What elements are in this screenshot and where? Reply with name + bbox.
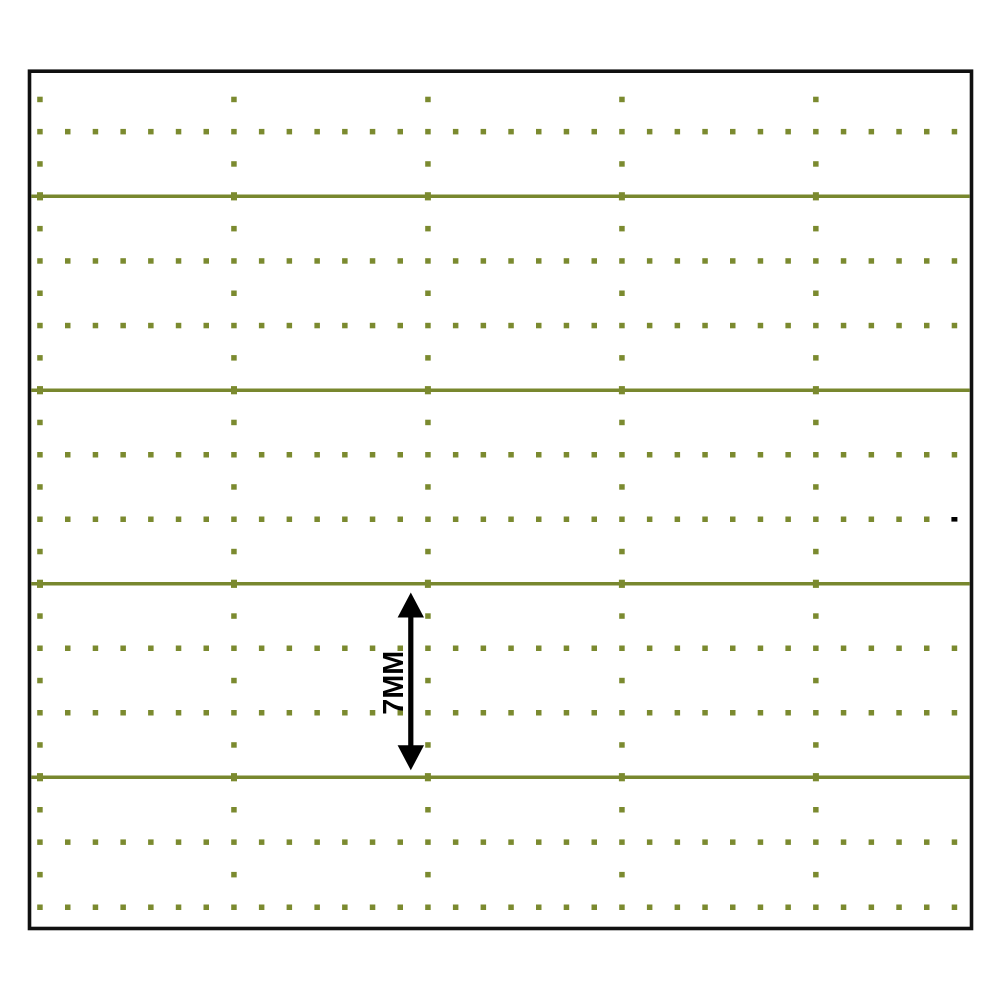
svg-text:7MM: 7MM xyxy=(378,651,410,715)
